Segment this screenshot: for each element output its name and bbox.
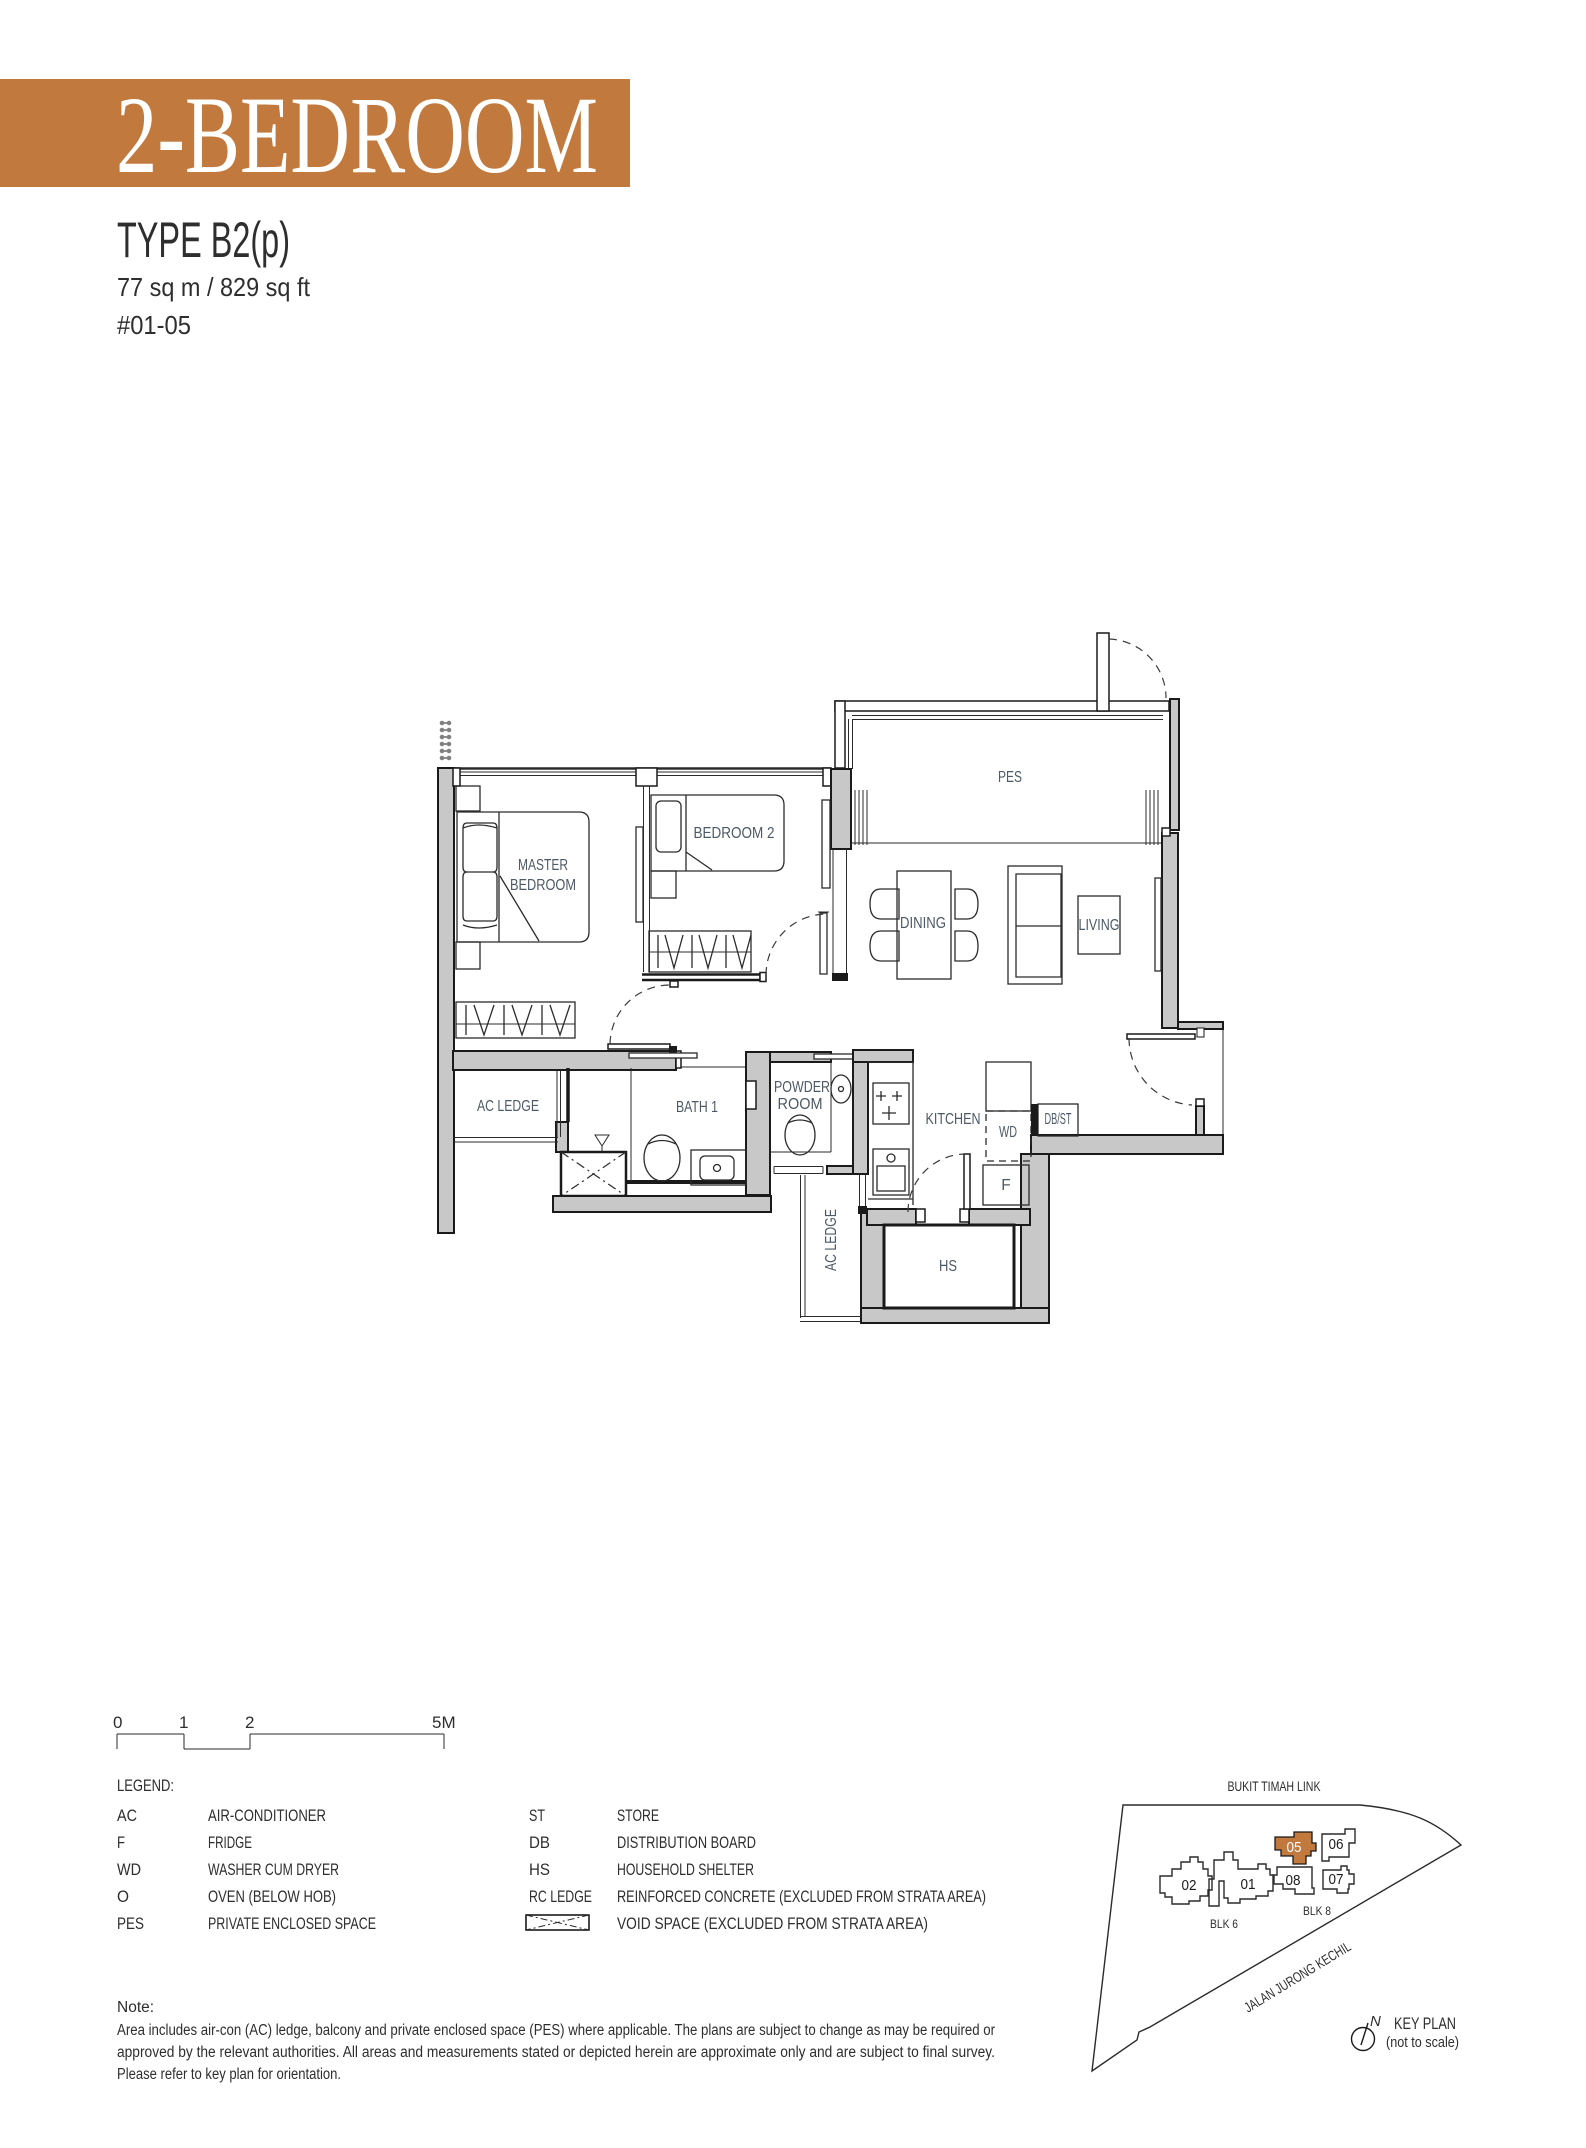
svg-text:MASTER: MASTER <box>518 857 568 874</box>
svg-text:ROOM: ROOM <box>778 1096 823 1113</box>
svg-text:O: O <box>117 1888 129 1906</box>
svg-text:2: 2 <box>245 1713 254 1732</box>
svg-text:RC LEDGE: RC LEDGE <box>529 1888 592 1906</box>
svg-text:AC: AC <box>117 1807 137 1825</box>
svg-text:BEDROOM: BEDROOM <box>510 877 576 894</box>
svg-text:BLK 6: BLK 6 <box>1210 1919 1238 1931</box>
svg-text:07: 07 <box>1329 1872 1344 1888</box>
svg-text:WASHER CUM DRYER: WASHER CUM DRYER <box>208 1861 339 1879</box>
svg-text:DB: DB <box>529 1834 550 1852</box>
svg-text:WD: WD <box>117 1861 141 1879</box>
svg-text:Note:: Note: <box>117 1999 154 2016</box>
svg-text:BUKIT TIMAH LINK: BUKIT TIMAH LINK <box>1228 1778 1321 1794</box>
svg-text:VOID SPACE (EXCLUDED FROM STRA: VOID SPACE (EXCLUDED FROM STRATA AREA) <box>617 1915 928 1933</box>
svg-text:POWDER: POWDER <box>774 1079 830 1096</box>
svg-text:DISTRIBUTION BOARD: DISTRIBUTION BOARD <box>617 1834 756 1852</box>
svg-text:2-BEDROOM: 2-BEDROOM <box>116 74 598 196</box>
svg-text:PES: PES <box>117 1915 144 1933</box>
svg-text:BLK 8: BLK 8 <box>1303 1906 1331 1918</box>
svg-text:approved by the relevant autho: approved by the relevant authorities. Al… <box>117 2044 995 2061</box>
svg-text:5M: 5M <box>432 1713 456 1732</box>
svg-text:(not to scale): (not to scale) <box>1386 2034 1459 2051</box>
svg-text:BATH 1: BATH 1 <box>676 1099 718 1116</box>
svg-text:Area includes air-con (AC) led: Area includes air-con (AC) ledge, balcon… <box>117 2022 995 2039</box>
svg-text:HOUSEHOLD SHELTER: HOUSEHOLD SHELTER <box>617 1861 754 1879</box>
svg-text:05: 05 <box>1287 1840 1302 1856</box>
svg-text:0: 0 <box>113 1713 122 1732</box>
svg-text:KITCHEN: KITCHEN <box>926 1111 981 1128</box>
svg-text:BEDROOM 2: BEDROOM 2 <box>694 825 775 842</box>
svg-text:N: N <box>1370 2013 1381 2030</box>
svg-text:1: 1 <box>179 1713 188 1732</box>
svg-text:#01-05: #01-05 <box>117 310 191 340</box>
svg-text:JALAN JURONG KECHIL: JALAN JURONG KECHIL <box>1241 1938 1354 2015</box>
svg-text:LIVING: LIVING <box>1079 917 1120 934</box>
svg-text:REINFORCED CONCRETE (EXCLUDED: REINFORCED CONCRETE (EXCLUDED FROM STRAT… <box>617 1888 986 1906</box>
svg-text:WD: WD <box>999 1124 1017 1141</box>
svg-text:01: 01 <box>1241 1877 1256 1893</box>
svg-text:DB/ST: DB/ST <box>1045 1111 1072 1128</box>
svg-text:PRIVATE ENCLOSED SPACE: PRIVATE ENCLOSED SPACE <box>208 1915 376 1933</box>
svg-text:OVEN (BELOW HOB): OVEN (BELOW HOB) <box>208 1888 336 1906</box>
svg-text:AC LEDGE: AC LEDGE <box>823 1209 840 1271</box>
svg-text:TYPE B2(p): TYPE B2(p) <box>117 212 290 268</box>
svg-text:Please refer to key plan for o: Please refer to key plan for orientation… <box>117 2066 341 2083</box>
svg-text:06: 06 <box>1329 1837 1344 1853</box>
svg-text:ST: ST <box>529 1807 545 1825</box>
svg-text:AIR-CONDITIONER: AIR-CONDITIONER <box>208 1807 326 1825</box>
svg-text:STORE: STORE <box>617 1807 659 1825</box>
svg-text:AC LEDGE: AC LEDGE <box>477 1098 539 1115</box>
svg-text:HS: HS <box>939 1258 957 1275</box>
svg-text:PES: PES <box>998 769 1022 786</box>
svg-text:77 sq m / 829 sq ft: 77 sq m / 829 sq ft <box>117 272 311 302</box>
svg-text:08: 08 <box>1286 1873 1301 1889</box>
svg-text:KEY PLAN: KEY PLAN <box>1394 2015 1456 2033</box>
svg-text:02: 02 <box>1182 1878 1197 1894</box>
svg-text:LEGEND:: LEGEND: <box>117 1777 174 1795</box>
svg-text:HS: HS <box>529 1861 550 1879</box>
svg-text:F: F <box>117 1834 125 1852</box>
svg-text:F: F <box>1001 1177 1010 1194</box>
svg-text:FRIDGE: FRIDGE <box>208 1834 252 1852</box>
svg-text:DINING: DINING <box>900 915 946 932</box>
